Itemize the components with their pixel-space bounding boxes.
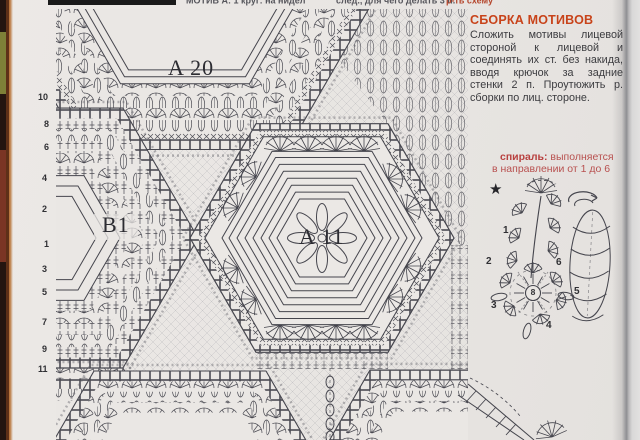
row-number: 8 (44, 119, 49, 129)
row-number: 9 (42, 344, 47, 354)
scan-left-edge-red (0, 150, 6, 262)
row-number: 6 (44, 142, 49, 152)
row-number: 2 (42, 204, 47, 214)
spiral-note-lead: спираль: (500, 151, 548, 163)
label-motif-a20: A 20 (168, 55, 214, 81)
row-number: 4 (42, 173, 47, 183)
cropped-photo-edge (48, 0, 176, 5)
row-number: 1 (44, 239, 49, 249)
scan-left-edge-olive (0, 32, 6, 94)
corner-motif-fragment (458, 378, 567, 440)
spiral-flower-center (491, 262, 575, 340)
label-motif-a11: A 11 (299, 224, 344, 250)
label-motif-b1: B1 (102, 212, 130, 238)
assembly-instructions: Сложить мотивы лицевой стороной к лицево… (470, 29, 623, 105)
row-number: 5 (42, 287, 47, 297)
spiral-step: 3 (491, 300, 497, 311)
row-number: 11 (38, 364, 48, 374)
row-number: 3 (42, 264, 47, 274)
star-icon: ★ (489, 180, 502, 198)
spiral-note-line2: в направлении от 1 до 6 (492, 164, 610, 175)
assembly-heading: СБОРКА МОТИВОВ (470, 13, 593, 27)
row-number: 7 (42, 317, 47, 327)
spiral-step: 6 (556, 257, 562, 268)
spiral-center-count: 8 (528, 287, 538, 297)
top-text-right: р-ть схему (446, 0, 493, 6)
spiral-step: 5 (574, 286, 580, 297)
spiral-note-line1: спираль: выполняется (500, 152, 614, 163)
rotation-arrow-icon (569, 192, 597, 206)
spiral-step: 4 (546, 320, 552, 331)
row-number: 10 (38, 92, 48, 102)
spiral-diagram (458, 176, 613, 440)
top-text-left: МОТИВ А: 1 круг: на нидел (186, 0, 305, 6)
twisted-spiral-figure (567, 209, 613, 322)
top-text-middle: след., для чего делать 3 п. (336, 0, 455, 6)
spiral-step: 1 (503, 225, 509, 236)
spiral-step: 2 (486, 256, 492, 267)
